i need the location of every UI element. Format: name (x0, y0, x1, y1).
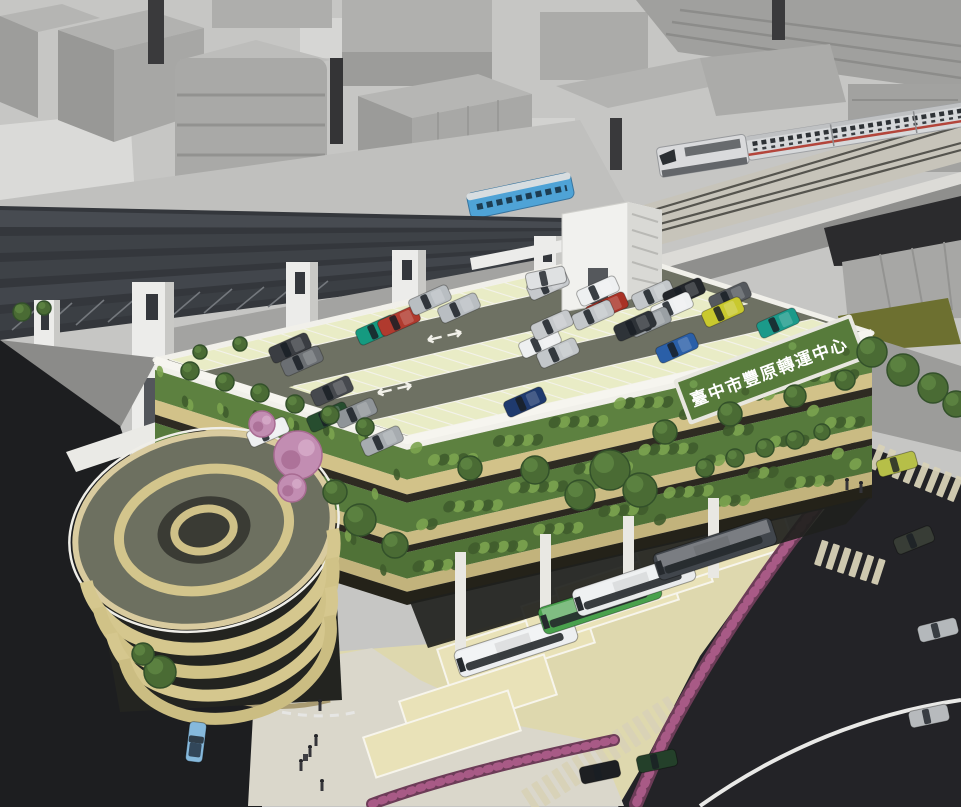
tree (718, 402, 742, 426)
pedestrian (845, 478, 849, 490)
rendering-stage: 臺中市豐原轉運中心 (0, 0, 961, 807)
tree (251, 384, 269, 402)
tree (323, 480, 347, 504)
tree (521, 456, 549, 484)
tree (565, 480, 595, 510)
tree (286, 395, 304, 413)
pedestrian (299, 759, 303, 771)
tree (786, 431, 804, 449)
tree (13, 303, 31, 321)
tree (193, 345, 207, 359)
tree (321, 406, 339, 424)
tree (382, 532, 408, 558)
tree (37, 301, 51, 315)
luggage (303, 754, 308, 761)
tree (756, 439, 774, 457)
pedestrian (318, 699, 322, 711)
flowering-tree (274, 431, 322, 479)
pedestrian (314, 734, 318, 746)
tree (653, 420, 677, 444)
tree (233, 337, 247, 351)
tree (814, 424, 830, 440)
rendering-canvas: 臺中市豐原轉運中心 (0, 0, 961, 807)
pedestrian (320, 779, 324, 791)
tree (216, 373, 234, 391)
tree (696, 459, 714, 477)
tree (344, 504, 376, 536)
tree (784, 385, 806, 407)
tree (857, 337, 887, 367)
tree (943, 391, 961, 417)
tree (623, 473, 657, 507)
tree (181, 362, 199, 380)
tree (458, 456, 482, 480)
pedestrian (859, 481, 863, 493)
tree (835, 370, 855, 390)
tree (726, 449, 744, 467)
tree (887, 354, 919, 386)
flowering-tree (249, 411, 275, 437)
flowering-tree (278, 474, 306, 502)
tree (132, 643, 154, 665)
tree (356, 418, 374, 436)
